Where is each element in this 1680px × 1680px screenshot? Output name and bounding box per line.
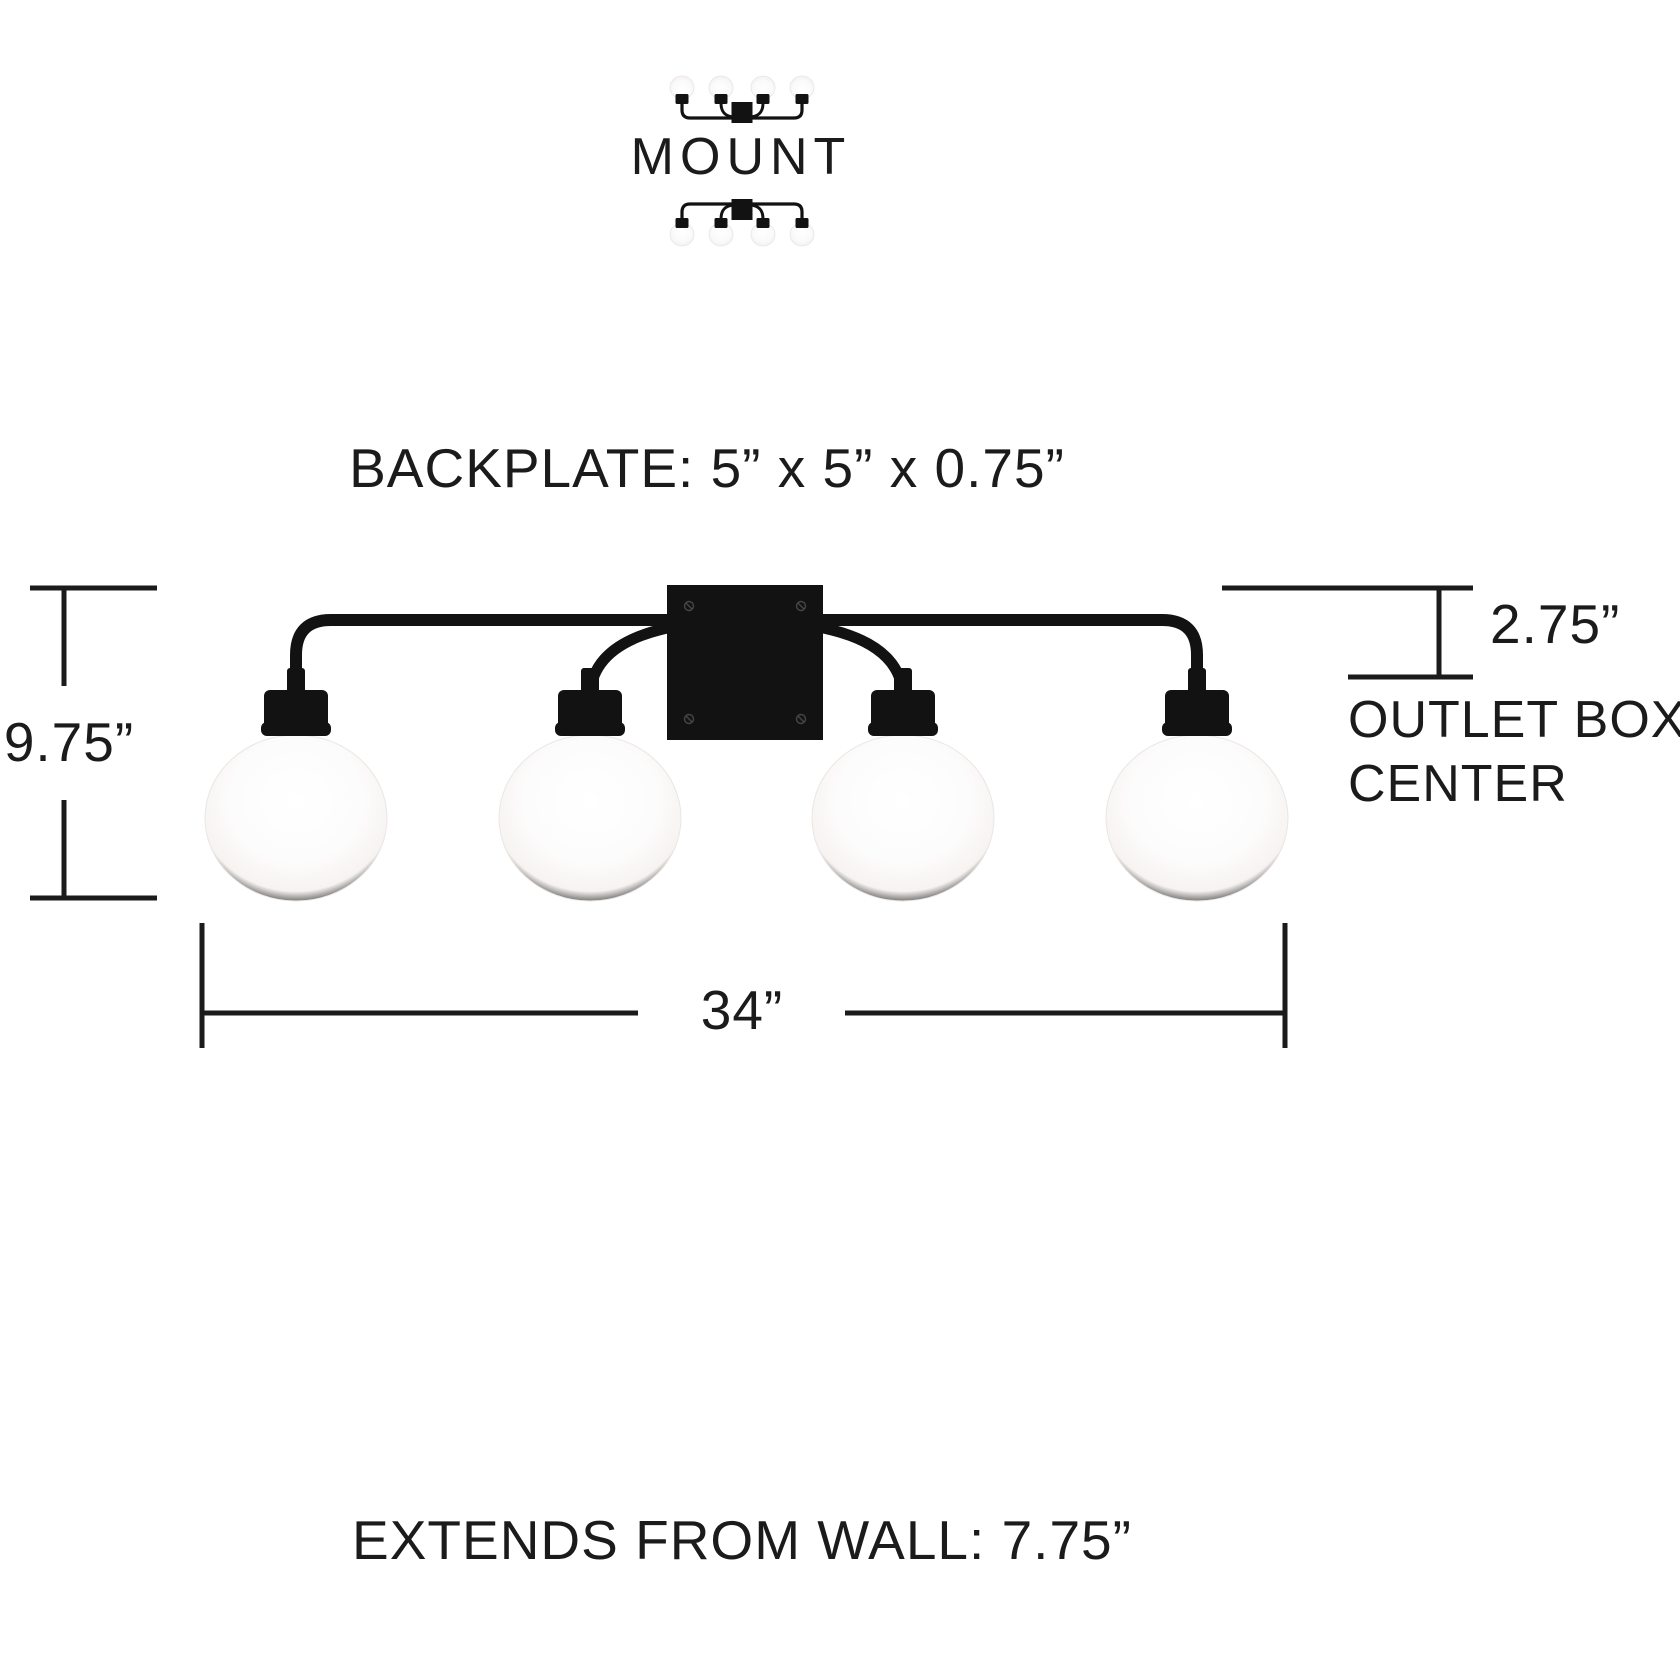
wall-extension-label: EXTENDS FROM WALL: 7.75” (352, 1513, 1132, 1568)
outlet-offset-value: 2.75” (1490, 597, 1620, 652)
product-dimension-diagram: MOUNT (0, 0, 1680, 1680)
glass-globe (499, 735, 681, 901)
fixture-line-art (0, 0, 1680, 1680)
fixture-backplate (667, 585, 823, 740)
glass-globe (812, 735, 994, 901)
glass-globes (205, 735, 1288, 901)
height-dimension-value: 9.75” (0, 715, 138, 770)
outlet-box-label-line1: OUTLET BOX (1348, 688, 1680, 752)
outlet-box-label-line2: CENTER (1348, 752, 1680, 816)
outlet-box-center-label: OUTLET BOX CENTER (1348, 688, 1680, 816)
glass-globe (1106, 735, 1288, 901)
outlet-dimension-line (1222, 588, 1473, 677)
glass-globe (205, 735, 387, 901)
width-dimension-value: 34” (701, 983, 784, 1038)
